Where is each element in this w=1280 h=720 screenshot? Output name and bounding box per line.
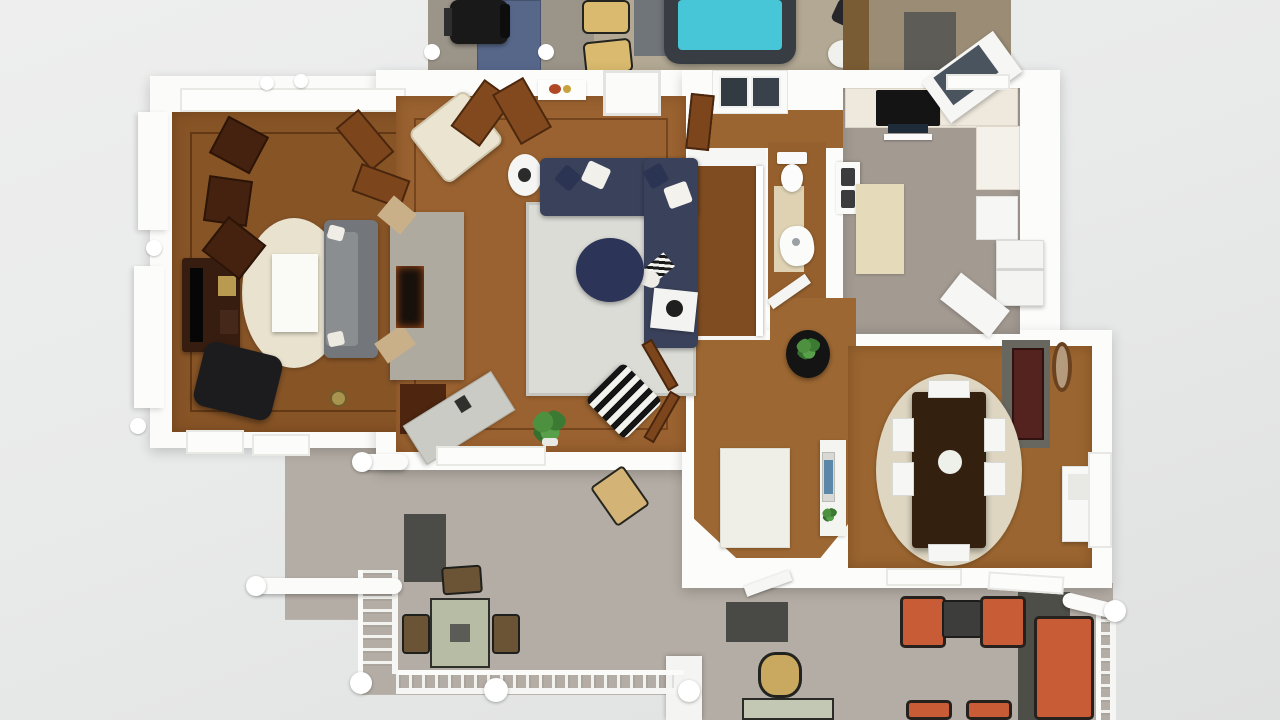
tv-shelf-books-2 <box>220 310 238 334</box>
den-window-left-1 <box>138 112 168 230</box>
deck-railing-bottom <box>396 670 684 694</box>
orange-armchair-3 <box>906 700 952 720</box>
rail-topleft-cap <box>352 452 372 472</box>
orange-armchair-4 <box>966 700 1012 720</box>
lounge-chair-1 <box>582 0 630 34</box>
oven-handle <box>884 134 932 140</box>
den-top-window-band <box>180 88 406 112</box>
console-plant <box>822 508 838 522</box>
side-table-decor <box>518 168 531 182</box>
console-art-teal <box>824 460 833 494</box>
tv-screen <box>190 268 203 342</box>
dining-chair-right-1 <box>984 418 1006 452</box>
den-coffee-table <box>272 254 318 332</box>
bbq-grill-shelf <box>444 8 452 36</box>
toilet-bowl <box>781 164 803 192</box>
sink-basin-2 <box>841 190 855 208</box>
den-sofa-seat <box>326 232 358 346</box>
sink-faucet <box>792 238 800 246</box>
railing-end-cap <box>246 576 266 596</box>
stair-treads <box>696 166 758 336</box>
bbq-grill-hood <box>500 4 510 38</box>
wall-cap-5 <box>146 240 162 256</box>
wicker-chair-tan <box>758 652 802 698</box>
plant-pot <box>542 438 558 446</box>
den-window-left-2 <box>134 266 164 408</box>
deck-post-3 <box>678 680 700 702</box>
wall-cap-3 <box>260 76 274 90</box>
fridge-divider <box>996 268 1044 271</box>
den-window-bottom-1 <box>186 430 244 454</box>
dining-centerpiece-flowers <box>938 450 962 474</box>
deck-post-1 <box>350 672 372 694</box>
mirror-round <box>1052 342 1072 392</box>
window-bay-top <box>603 70 661 116</box>
front-doormat <box>726 602 788 642</box>
den-window-bottom-2 <box>252 434 310 456</box>
deck-table-center <box>450 624 470 642</box>
orange-armchair-2 <box>980 596 1026 648</box>
railing-end-bar <box>252 578 402 594</box>
toilet-tank <box>777 152 807 164</box>
side-table-decor-2 <box>666 300 683 317</box>
hall-window-dark-2 <box>751 76 781 108</box>
tv-shelf-books-1 <box>218 276 236 296</box>
deck-post-2 <box>484 678 508 702</box>
nook-runner-rug <box>1012 348 1044 440</box>
wall-cap-2 <box>538 44 554 60</box>
floor-plan-render <box>0 0 1280 720</box>
dining-chair-bottom <box>928 544 970 562</box>
hall-window-dark-1 <box>719 76 749 108</box>
art-shelf <box>538 80 586 100</box>
orange-sofa <box>1034 616 1094 720</box>
dining-window-bottom-1 <box>886 568 962 586</box>
fridge <box>996 240 1044 306</box>
dining-chair-right-2 <box>984 462 1006 496</box>
den-basket <box>330 390 347 407</box>
orange-armchair-1 <box>900 596 946 648</box>
wall-cap-1 <box>424 44 440 60</box>
sink-basin-1 <box>841 168 855 186</box>
art-bowl-yellow <box>563 85 571 93</box>
deck-side-table <box>942 600 982 638</box>
deck-railing-right <box>1096 606 1116 720</box>
deck-chair-left <box>402 614 430 654</box>
deck-chair-top <box>441 565 483 596</box>
living-window-bottom <box>436 446 546 466</box>
dining-chair-left-2 <box>892 462 914 496</box>
fireplace-firebox <box>396 266 424 328</box>
dining-chair-top <box>928 380 970 398</box>
dining-window-right <box>1088 452 1112 548</box>
glass-tile-table <box>742 698 834 720</box>
kitchen-counter-right <box>976 126 1020 190</box>
foyer-rug-moroccan <box>720 448 790 548</box>
foyer-table-plant <box>796 338 822 360</box>
art-bowl-red <box>549 84 561 94</box>
kitchen-runner-rug <box>856 184 904 274</box>
kitchen-window-top <box>946 74 1010 90</box>
kitchen-cabinet-mid <box>976 196 1018 240</box>
deck-chair-right <box>492 614 520 654</box>
deck-mat-1 <box>404 514 446 582</box>
rail-right-cap <box>1104 600 1126 622</box>
oven-window <box>888 124 928 133</box>
dining-chair-left-1 <box>892 418 914 452</box>
wall-cap-6 <box>130 418 146 434</box>
wall-cap-4 <box>294 74 308 88</box>
ottoman-round-navy <box>576 238 644 302</box>
hot-tub-water <box>678 0 782 50</box>
stair-railing <box>756 166 763 336</box>
